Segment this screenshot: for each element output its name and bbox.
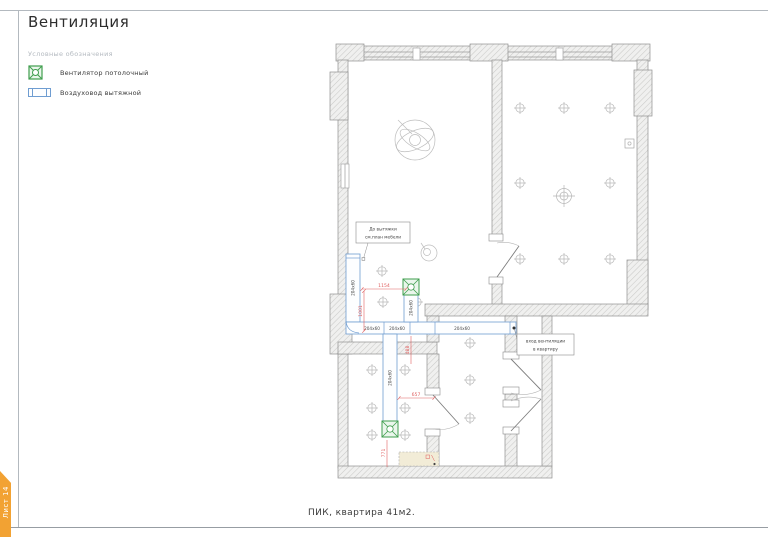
spotlight-icon xyxy=(514,177,526,189)
sheet-tab-label: Лист 14 xyxy=(2,486,10,522)
spotlight-icon xyxy=(366,364,378,376)
page-title: Вентиляция xyxy=(28,13,129,31)
spotlight-icon xyxy=(464,374,476,386)
ceiling-fan-bathroom-icon xyxy=(382,421,398,437)
spotlight-icon xyxy=(366,402,378,414)
wall-fixture-icon xyxy=(625,139,634,148)
spotlight-icon xyxy=(399,364,411,376)
legend: Условные обозначения Вентилятор потолочн… xyxy=(28,50,149,105)
appliance-block xyxy=(399,452,439,466)
light-fixtures xyxy=(366,102,616,441)
dimension-label: 488 xyxy=(405,346,411,355)
duct-size-label: 204x60 xyxy=(454,326,470,331)
legend-label-exhaust-duct: Воздуховод вытяжной xyxy=(60,89,141,97)
callout-hood: До вытяжки см.план мебели xyxy=(356,222,410,260)
callout-text: см.план мебели xyxy=(365,235,401,241)
callout-text: в квартиру xyxy=(533,348,558,353)
ceiling-fan-kitchen-icon xyxy=(403,279,419,295)
callout-text: До вытяжки xyxy=(369,227,397,233)
spotlight-icon xyxy=(558,253,570,265)
windows xyxy=(341,48,634,188)
door-hallway-lower xyxy=(503,397,541,434)
pendant-sketch-icon xyxy=(421,243,437,261)
spotlight-icon xyxy=(376,265,388,277)
legend-item-exhaust-duct: Воздуховод вытяжной xyxy=(28,88,149,97)
spotlight-icon xyxy=(514,102,526,114)
door-hallway-upper xyxy=(503,352,541,394)
sheet-frame-bottom xyxy=(0,527,768,528)
exhaust-duct-icon xyxy=(28,88,52,97)
spotlight-icon xyxy=(464,337,476,349)
callout-text: вход вентиляции xyxy=(526,340,565,345)
spotlight-icon xyxy=(604,177,616,189)
drawing-sheet: Вентиляция Условные обозначения Вентилят… xyxy=(0,0,768,543)
spotlight-icon xyxy=(399,429,411,441)
spotlight-icon xyxy=(604,102,616,114)
bedroom-main-light-icon xyxy=(553,185,575,207)
legend-label-ceiling-fan: Вентилятор потолочный xyxy=(60,69,149,77)
floor-plan: 204x60 204x60 204x60 204x60 204x60 204x6… xyxy=(320,30,665,495)
duct-size-label: 204x60 xyxy=(409,300,414,316)
spotlight-icon xyxy=(558,102,570,114)
dimension-label: 771 xyxy=(381,449,387,458)
dimension-label: 1154 xyxy=(378,283,390,289)
walls xyxy=(330,44,652,478)
spotlight-icon xyxy=(464,412,476,424)
dimension-label: 1001 xyxy=(358,305,364,317)
door-bathroom xyxy=(425,388,459,436)
duct-inlet-point xyxy=(513,327,516,330)
spotlight-icon xyxy=(399,402,411,414)
plan-caption: ПИК, квартира 41м2. xyxy=(308,508,415,518)
sheet-frame-top xyxy=(0,10,768,11)
spotlight-icon xyxy=(604,253,616,265)
legend-item-ceiling-fan: Вентилятор потолочный xyxy=(28,65,149,80)
spotlight-icon xyxy=(366,429,378,441)
sheet-frame-left xyxy=(18,10,19,527)
spotlight-icon xyxy=(377,296,389,308)
ceiling-fan-icon xyxy=(28,65,52,80)
spotlight-icon xyxy=(514,253,526,265)
chandelier-sketch-icon xyxy=(393,120,437,160)
dimension-label: 657 xyxy=(412,392,421,398)
duct-size-label: 204x60 xyxy=(351,280,356,296)
duct-size-label: 204x60 xyxy=(388,370,393,386)
legend-header: Условные обозначения xyxy=(28,50,149,58)
duct-size-label: 204x60 xyxy=(389,326,405,331)
sheet-tab: Лист 14 xyxy=(0,471,11,537)
duct-size-label: 204x60 xyxy=(364,326,380,331)
